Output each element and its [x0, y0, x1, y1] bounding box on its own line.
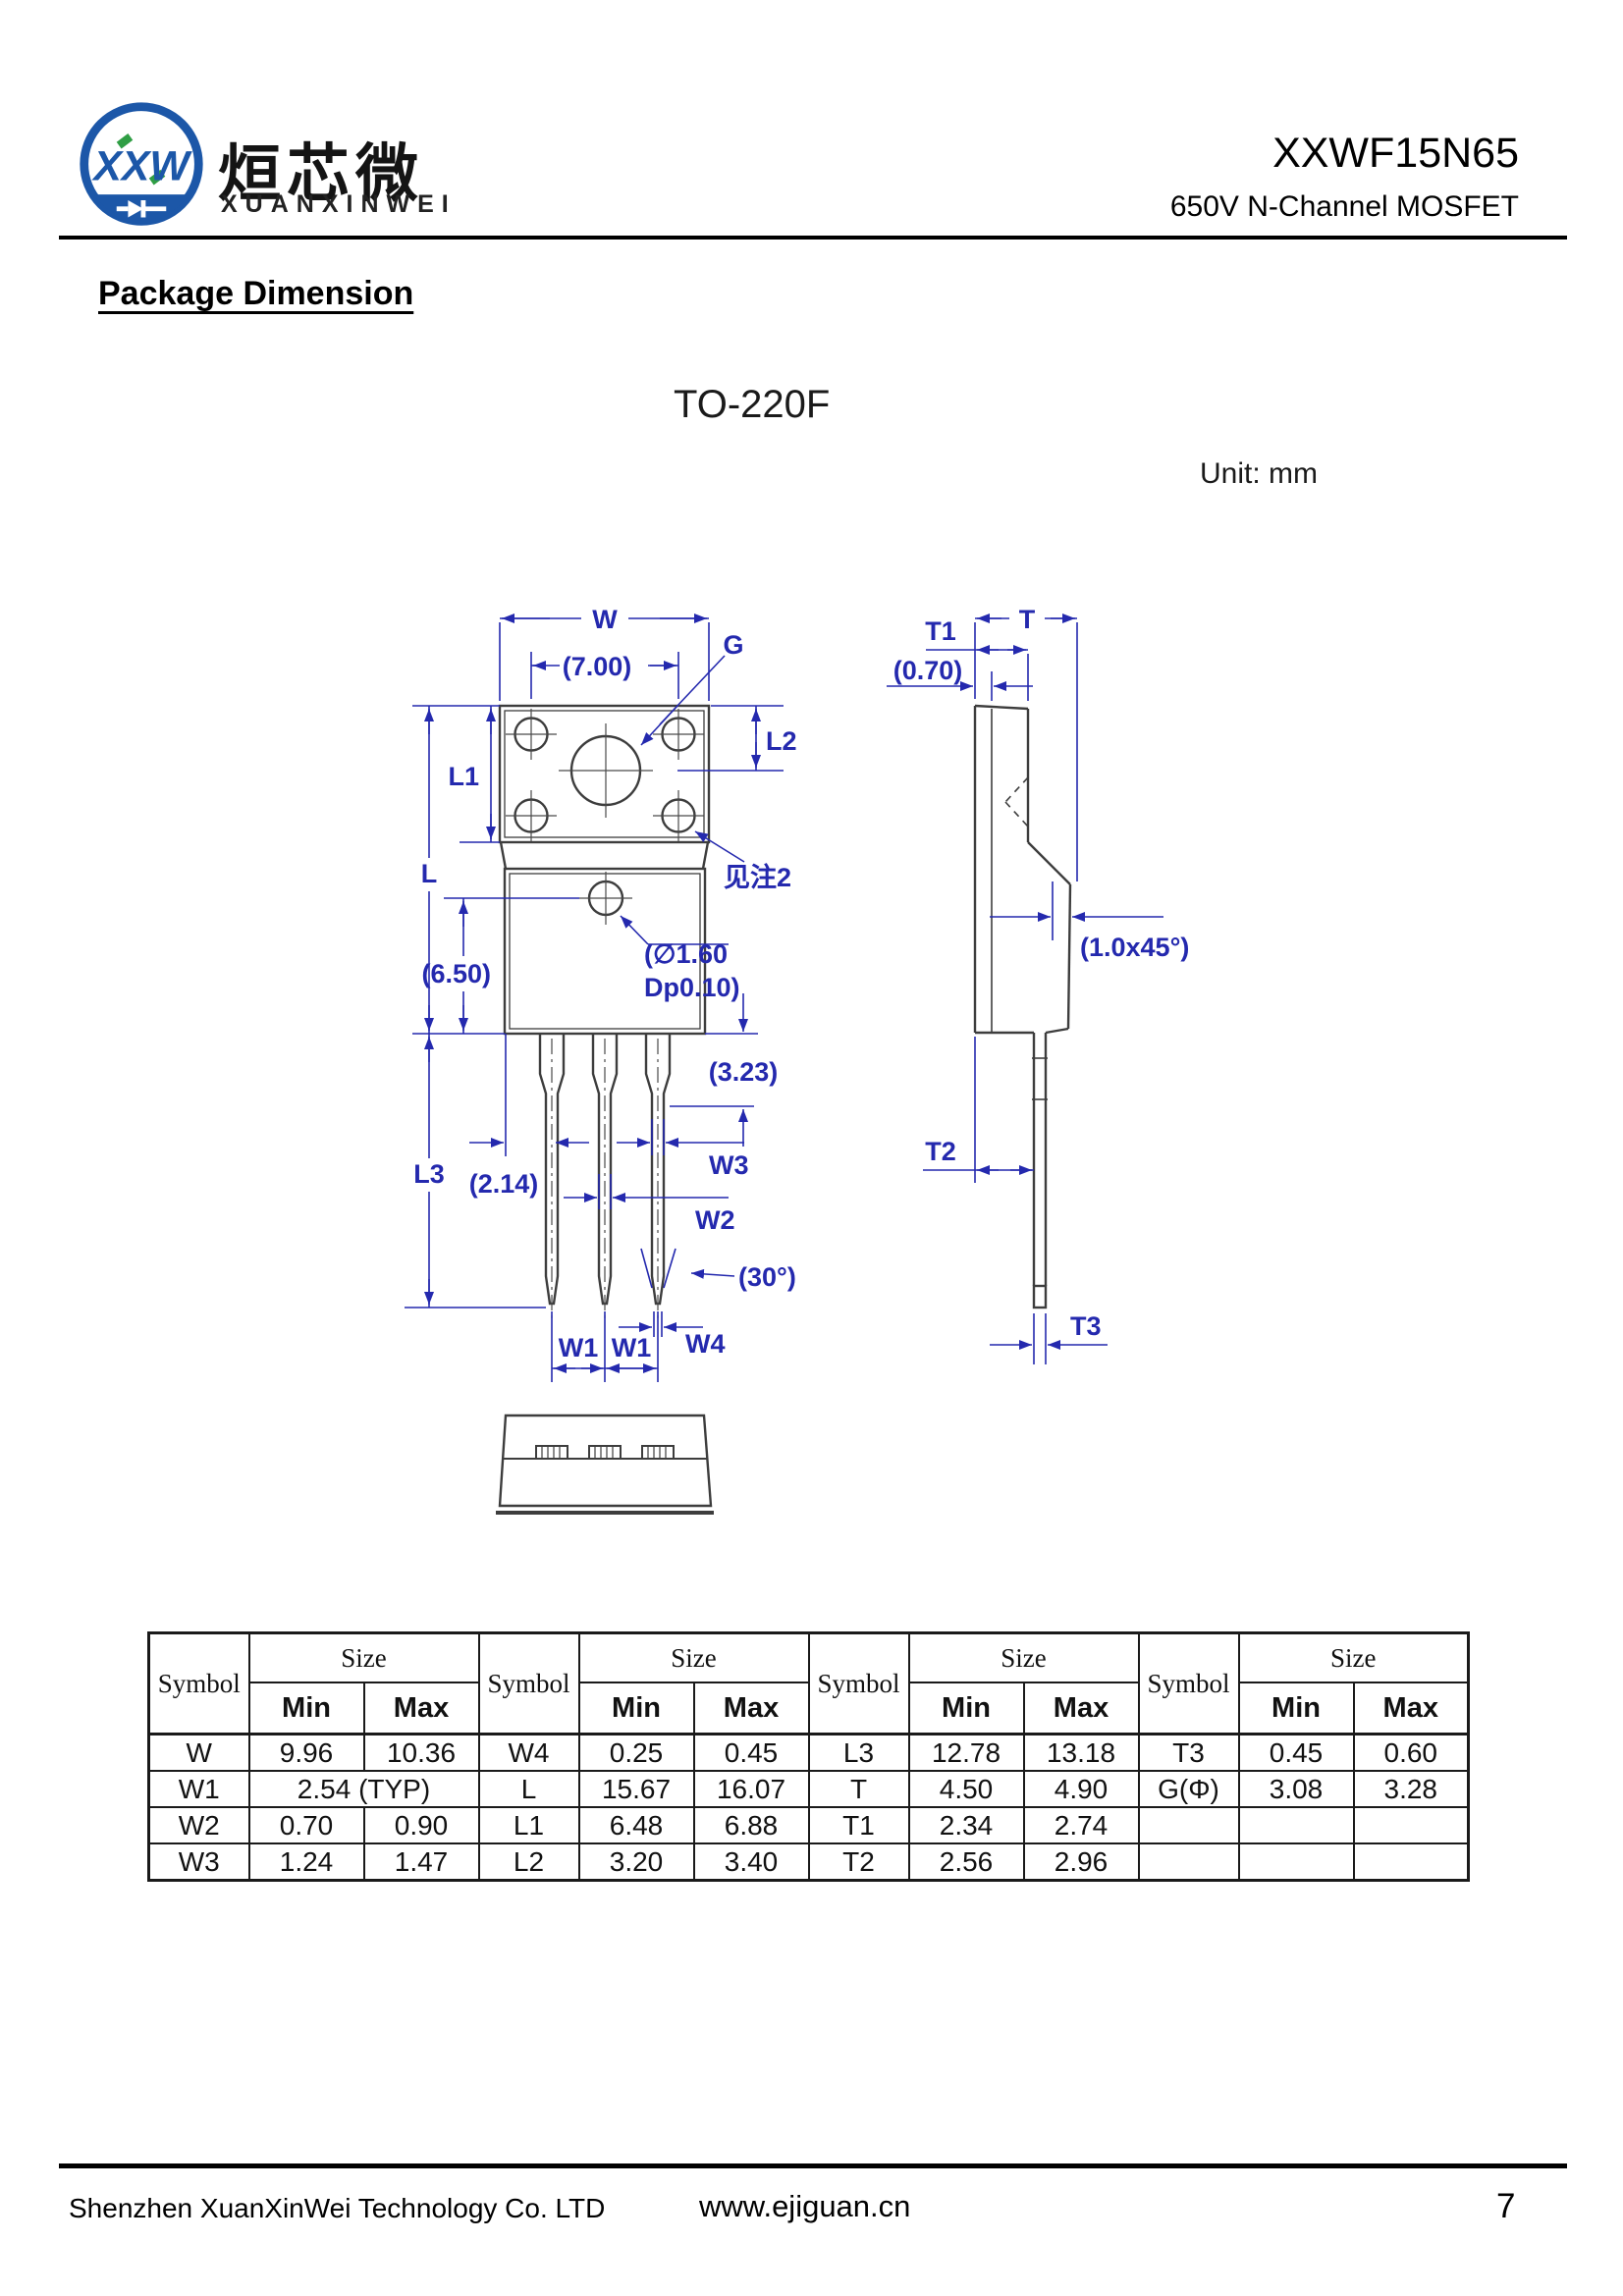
dim-label-t2: T2 [925, 1137, 956, 1166]
size-header: Size [909, 1633, 1139, 1683]
dim-label-214: (2.14) [469, 1169, 539, 1199]
dim-label-g: G [723, 630, 743, 660]
max-cell [1354, 1807, 1469, 1843]
footer-website: www.ejiguan.cn [699, 2189, 910, 2224]
max-cell: 6.88 [694, 1807, 809, 1843]
datasheet-page: XXW 烜芯微 XUANXINWEI XXWF15N65 650V N-Chan… [0, 0, 1623, 2296]
dim-label-w4: W4 [685, 1329, 726, 1359]
min-cell: 3.08 [1239, 1771, 1354, 1807]
dim-label-l2: L2 [766, 726, 797, 756]
footer-rule [59, 2163, 1567, 2168]
min-cell: 2.34 [909, 1807, 1024, 1843]
symbol-cell: T [809, 1771, 909, 1807]
max-cell: 0.90 [364, 1807, 479, 1843]
max-cell: 10.36 [364, 1735, 479, 1772]
symbol-header: Symbol [809, 1633, 909, 1735]
dim-label-note2: 见注2 [724, 862, 791, 892]
dim-label-l: L [421, 859, 438, 888]
size-header: Size [1239, 1633, 1469, 1683]
dim-label-w3: W3 [709, 1150, 749, 1180]
symbol-cell: L2 [479, 1843, 579, 1881]
table-row: W1 2.54 (TYP) L 15.67 16.07 T 4.50 4.90 … [149, 1771, 1469, 1807]
min-header: Min [579, 1682, 694, 1735]
min-cell: 15.67 [579, 1771, 694, 1807]
dim-label-chamfer: (1.0x45°) [1080, 933, 1189, 962]
max-cell [1354, 1843, 1469, 1881]
dim-label-hole-depth: Dp0.10) [644, 973, 740, 1002]
symbol-header: Symbol [479, 1633, 579, 1735]
max-cell: 2.74 [1024, 1807, 1139, 1843]
symbol-cell: L3 [809, 1735, 909, 1772]
max-header: Max [364, 1682, 479, 1735]
min-cell: 6.48 [579, 1807, 694, 1843]
symbol-cell: W [149, 1735, 249, 1772]
symbol-cell: T1 [809, 1807, 909, 1843]
min-cell: 9.96 [249, 1735, 364, 1772]
side-dimensions [887, 618, 1163, 1364]
symbol-cell [1139, 1843, 1239, 1881]
min-cell: 3.20 [579, 1843, 694, 1881]
symbol-cell: W2 [149, 1807, 249, 1843]
dim-label-w1-left: W1 [559, 1333, 599, 1362]
min-header: Min [1239, 1682, 1354, 1735]
package-dimension-drawing: W (7.00) G L2 L1 L 见注2 (6.50) (∅1.60 Dp0… [0, 0, 1623, 2296]
max-header: Max [1024, 1682, 1139, 1735]
side-view [975, 706, 1070, 1308]
max-cell: 0.45 [694, 1735, 809, 1772]
min-cell: 1.24 [249, 1843, 364, 1881]
dim-label-hole-dia: (∅1.60 [644, 939, 728, 969]
symbol-header: Symbol [149, 1633, 249, 1735]
max-header: Max [1354, 1682, 1469, 1735]
dim-label-323: (3.23) [709, 1057, 779, 1087]
table-row: W 9.96 10.36 W4 0.25 0.45 L3 12.78 13.18… [149, 1735, 1469, 1772]
symbol-cell: W3 [149, 1843, 249, 1881]
min-cell: 4.50 [909, 1771, 1024, 1807]
dim-label-w2: W2 [695, 1205, 735, 1235]
dim-label-t3: T3 [1070, 1311, 1102, 1341]
dim-label-650: (6.50) [421, 959, 491, 988]
max-cell: 16.07 [694, 1771, 809, 1807]
symbol-cell: L1 [479, 1807, 579, 1843]
symbol-cell: L [479, 1771, 579, 1807]
max-cell: 2.96 [1024, 1843, 1139, 1881]
min-cell: 0.25 [579, 1735, 694, 1772]
symbol-cell: W4 [479, 1735, 579, 1772]
symbol-cell: T2 [809, 1843, 909, 1881]
symbol-cell: W1 [149, 1771, 249, 1807]
min-cell: 2.56 [909, 1843, 1024, 1881]
dim-label-l1: L1 [448, 762, 479, 791]
dim-label-w: W [592, 605, 618, 634]
min-cell: 0.70 [249, 1807, 364, 1843]
max-cell: 1.47 [364, 1843, 479, 1881]
symbol-cell: T3 [1139, 1735, 1239, 1772]
symbol-cell [1139, 1807, 1239, 1843]
page-number: 7 [1496, 2187, 1515, 2226]
min-cell: 12.78 [909, 1735, 1024, 1772]
max-cell: 3.28 [1354, 1771, 1469, 1807]
dim-label-w1-right: W1 [612, 1333, 652, 1362]
min-cell: 0.45 [1239, 1735, 1354, 1772]
symbol-header: Symbol [1139, 1633, 1239, 1735]
dim-label-t: T [1019, 605, 1036, 634]
dimension-table: Symbol Size Symbol Size Symbol Size Symb… [147, 1631, 1470, 1882]
dim-label-30deg: (30°) [738, 1262, 796, 1292]
dim-label-l3: L3 [413, 1159, 445, 1189]
max-cell: 3.40 [694, 1843, 809, 1881]
min-cell [1239, 1843, 1354, 1881]
dim-label-t1: T1 [925, 616, 956, 646]
symbol-cell: G(Φ) [1139, 1771, 1239, 1807]
dim-label-700: (7.00) [563, 652, 632, 681]
table-row: W2 0.70 0.90 L1 6.48 6.88 T1 2.34 2.74 [149, 1807, 1469, 1843]
footer-company: Shenzhen XuanXinWei Technology Co. LTD [69, 2193, 605, 2224]
typ-cell: 2.54 (TYP) [249, 1771, 479, 1807]
dim-label-070: (0.70) [893, 656, 963, 685]
max-header: Max [694, 1682, 809, 1735]
max-cell: 4.90 [1024, 1771, 1139, 1807]
max-cell: 13.18 [1024, 1735, 1139, 1772]
min-header: Min [909, 1682, 1024, 1735]
min-cell [1239, 1807, 1354, 1843]
size-header: Size [249, 1633, 479, 1683]
table-row: W3 1.24 1.47 L2 3.20 3.40 T2 2.56 2.96 [149, 1843, 1469, 1881]
min-header: Min [249, 1682, 364, 1735]
max-cell: 0.60 [1354, 1735, 1469, 1772]
bottom-view [496, 1415, 714, 1513]
size-header: Size [579, 1633, 809, 1683]
